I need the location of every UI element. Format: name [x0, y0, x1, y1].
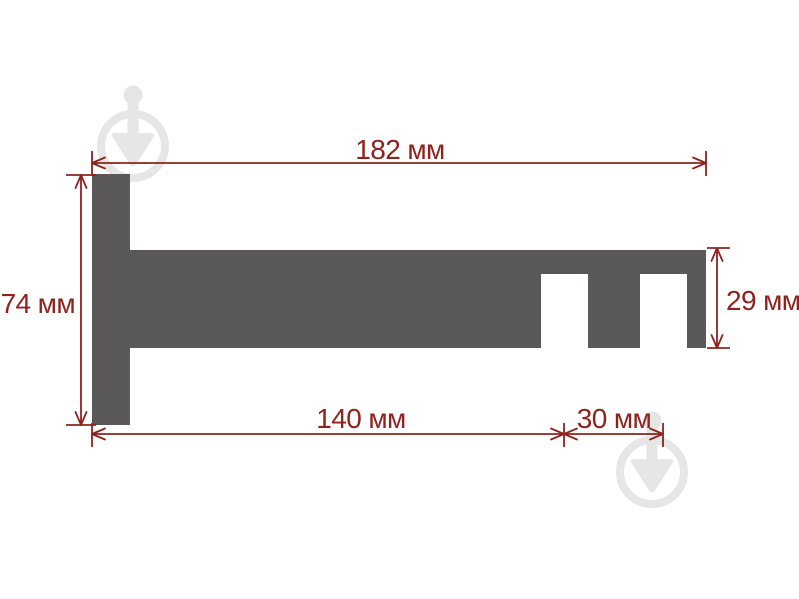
- watermark-triangle: [631, 459, 673, 492]
- product-dimension-image: 182 мм 74 мм 29 мм 140 мм: [0, 0, 799, 599]
- watermark-knob: [124, 86, 143, 105]
- dimension-label-total-width: 182 мм: [355, 134, 444, 165]
- watermark-triangle: [112, 133, 154, 166]
- dimension-bottom-length: 140 мм: [92, 403, 564, 447]
- dimension-label-left-height: 74 мм: [1, 288, 75, 319]
- watermark-logo-icon: [101, 86, 165, 179]
- dimension-label-right-height: 29 мм: [726, 285, 799, 316]
- bracket-profile-shape: [92, 174, 706, 425]
- dimension-right-height: 29 мм: [707, 248, 799, 348]
- bracket-dimension-diagram: 182 мм 74 мм 29 мм 140 мм: [0, 0, 799, 599]
- dimension-total-width: 182 мм: [92, 134, 706, 176]
- dimension-label-slot-pitch: 30 мм: [577, 403, 651, 434]
- dimension-label-bottom-length: 140 мм: [316, 403, 405, 434]
- dimension-left-height: 74 мм: [1, 175, 96, 425]
